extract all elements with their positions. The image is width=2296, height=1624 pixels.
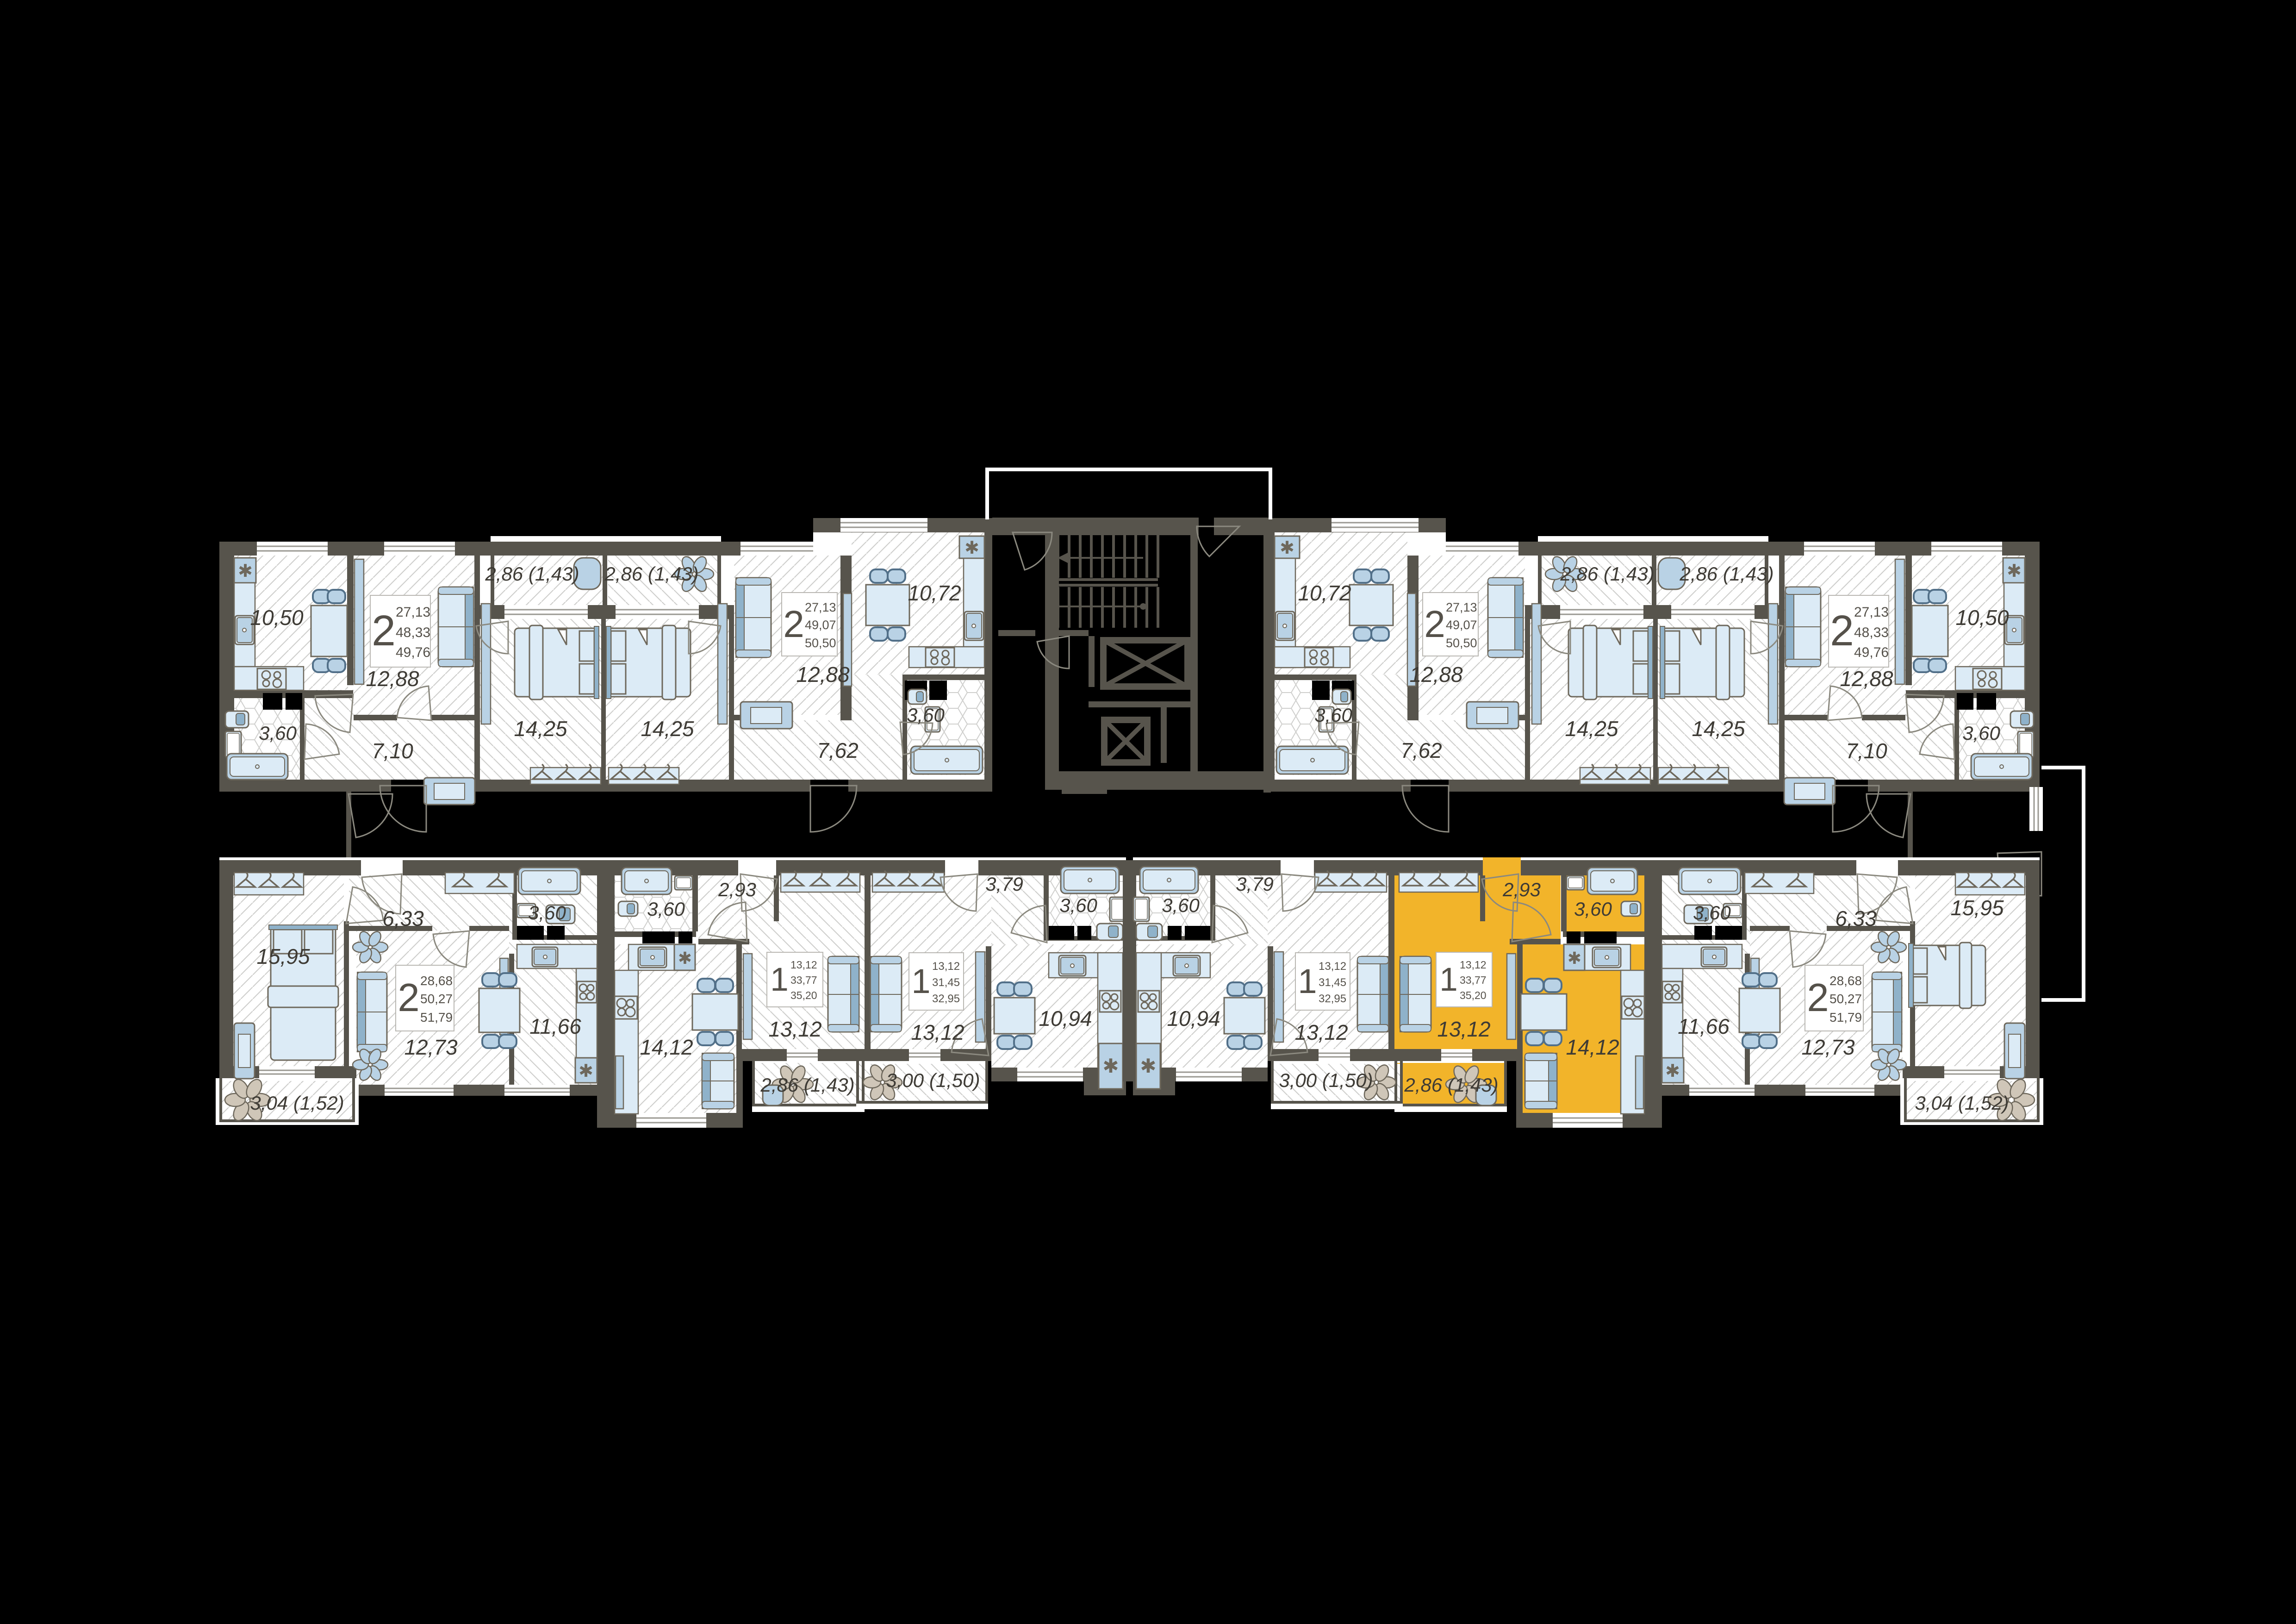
svg-text:12,73: 12,73 — [404, 1035, 458, 1059]
svg-text:2,86 (1,43): 2,86 (1,43) — [760, 1074, 854, 1096]
svg-text:2,86 (1,43): 2,86 (1,43) — [485, 563, 579, 585]
svg-text:✱: ✱ — [1665, 1062, 1680, 1081]
svg-text:11,66: 11,66 — [1678, 1014, 1730, 1038]
svg-text:12,73: 12,73 — [1801, 1035, 1855, 1059]
svg-text:3,00 (1,50): 3,00 (1,50) — [1279, 1069, 1373, 1091]
svg-text:50,50: 50,50 — [805, 636, 836, 650]
svg-text:3,60: 3,60 — [259, 722, 297, 744]
svg-text:2,86 (1,43): 2,86 (1,43) — [1404, 1074, 1498, 1096]
svg-text:3,60: 3,60 — [1314, 704, 1352, 726]
svg-text:✱: ✱ — [238, 562, 253, 581]
svg-text:14,25: 14,25 — [1565, 717, 1618, 741]
svg-text:3,60: 3,60 — [528, 902, 566, 924]
svg-text:49,07: 49,07 — [805, 618, 836, 632]
svg-text:13,12: 13,12 — [1294, 1020, 1348, 1044]
svg-text:48,33: 48,33 — [1854, 625, 1889, 640]
svg-text:✱: ✱ — [678, 949, 692, 968]
svg-text:13,12: 13,12 — [768, 1017, 821, 1041]
svg-text:✱: ✱ — [1280, 538, 1294, 558]
svg-text:7,62: 7,62 — [1400, 738, 1442, 762]
svg-text:3,60: 3,60 — [1162, 894, 1200, 916]
svg-text:15,95: 15,95 — [256, 944, 310, 968]
svg-text:12,88: 12,88 — [796, 662, 850, 687]
svg-text:14,25: 14,25 — [1692, 717, 1745, 741]
svg-text:10,72: 10,72 — [1298, 581, 1351, 605]
svg-text:50,50: 50,50 — [1446, 636, 1477, 650]
svg-text:1: 1 — [770, 962, 789, 998]
svg-text:2: 2 — [1807, 976, 1829, 1020]
svg-text:13,12: 13,12 — [1319, 960, 1346, 973]
svg-text:49,76: 49,76 — [396, 645, 430, 660]
svg-text:31,45: 31,45 — [1319, 976, 1346, 989]
svg-text:28,68: 28,68 — [420, 974, 453, 988]
svg-text:1: 1 — [1298, 962, 1317, 1000]
svg-text:6,33: 6,33 — [1835, 906, 1877, 931]
svg-text:2: 2 — [398, 976, 419, 1020]
svg-text:2: 2 — [372, 606, 396, 655]
svg-text:2: 2 — [1424, 603, 1445, 645]
svg-text:15,95: 15,95 — [1950, 896, 2004, 920]
svg-text:51,79: 51,79 — [1829, 1010, 1862, 1024]
svg-text:2: 2 — [783, 603, 804, 645]
svg-text:31,45: 31,45 — [932, 976, 960, 989]
svg-text:13,12: 13,12 — [790, 959, 817, 971]
svg-text:14,25: 14,25 — [641, 717, 694, 741]
svg-text:3,60: 3,60 — [1693, 902, 1731, 924]
svg-text:3,60: 3,60 — [1574, 898, 1612, 920]
svg-text:33,77: 33,77 — [790, 974, 817, 986]
svg-text:49,07: 49,07 — [1446, 618, 1477, 632]
svg-text:✱: ✱ — [964, 538, 979, 558]
svg-text:2,86 (1,43): 2,86 (1,43) — [604, 563, 698, 585]
svg-text:✱: ✱ — [1568, 949, 1581, 968]
svg-text:12,88: 12,88 — [366, 667, 419, 691]
svg-text:14,12: 14,12 — [1566, 1035, 1619, 1059]
svg-text:10,94: 10,94 — [1167, 1006, 1220, 1031]
svg-text:33,77: 33,77 — [1460, 974, 1487, 986]
svg-text:35,20: 35,20 — [790, 989, 817, 1001]
svg-text:1: 1 — [1439, 962, 1458, 998]
svg-text:2: 2 — [1830, 606, 1854, 655]
svg-text:11,66: 11,66 — [529, 1014, 581, 1038]
svg-text:3,00 (1,50): 3,00 (1,50) — [886, 1069, 980, 1091]
svg-text:10,50: 10,50 — [250, 606, 304, 630]
svg-text:7,10: 7,10 — [372, 739, 413, 763]
svg-text:13,12: 13,12 — [911, 1020, 964, 1044]
svg-text:✱: ✱ — [1140, 1055, 1156, 1077]
svg-text:✱: ✱ — [579, 1062, 593, 1081]
svg-text:7,62: 7,62 — [817, 738, 859, 762]
svg-text:3,04 (1,52): 3,04 (1,52) — [1915, 1092, 2009, 1114]
svg-text:32,95: 32,95 — [932, 993, 960, 1005]
svg-text:3,60: 3,60 — [1059, 894, 1097, 916]
svg-text:✱: ✱ — [2007, 562, 2022, 581]
svg-text:27,13: 27,13 — [396, 605, 430, 620]
svg-text:27,13: 27,13 — [1854, 605, 1889, 620]
svg-text:✱: ✱ — [1102, 1055, 1119, 1077]
svg-text:3,60: 3,60 — [907, 704, 945, 726]
svg-text:50,27: 50,27 — [420, 992, 453, 1006]
svg-text:13,12: 13,12 — [1460, 959, 1487, 971]
svg-text:13,12: 13,12 — [1437, 1017, 1490, 1041]
svg-text:28,68: 28,68 — [1829, 974, 1862, 988]
svg-text:3,04 (1,52): 3,04 (1,52) — [250, 1092, 344, 1114]
svg-text:50,27: 50,27 — [1829, 992, 1862, 1006]
svg-text:7,10: 7,10 — [1846, 739, 1887, 763]
svg-text:6,33: 6,33 — [382, 906, 424, 931]
svg-text:14,25: 14,25 — [514, 717, 567, 741]
svg-text:2,93: 2,93 — [718, 879, 756, 900]
svg-text:3,60: 3,60 — [1962, 722, 2000, 744]
svg-text:2,86 (1,43): 2,86 (1,43) — [1679, 563, 1773, 585]
svg-text:2,93: 2,93 — [1502, 879, 1541, 900]
svg-text:48,33: 48,33 — [396, 625, 430, 640]
svg-text:3,79: 3,79 — [1236, 873, 1274, 895]
svg-text:14,12: 14,12 — [640, 1035, 693, 1059]
svg-text:12,88: 12,88 — [1409, 662, 1463, 687]
svg-text:3,79: 3,79 — [985, 873, 1023, 895]
svg-text:10,94: 10,94 — [1039, 1006, 1092, 1031]
svg-text:10,50: 10,50 — [1955, 606, 2009, 630]
svg-text:10,72: 10,72 — [908, 581, 961, 605]
svg-text:12,88: 12,88 — [1840, 667, 1893, 691]
svg-text:1: 1 — [911, 962, 930, 1000]
svg-text:51,79: 51,79 — [420, 1010, 453, 1024]
svg-text:27,13: 27,13 — [1446, 600, 1477, 614]
svg-text:13,12: 13,12 — [932, 960, 960, 973]
svg-text:3,60: 3,60 — [647, 898, 685, 920]
svg-text:27,13: 27,13 — [805, 600, 836, 614]
svg-text:49,76: 49,76 — [1854, 645, 1889, 660]
svg-text:35,20: 35,20 — [1460, 989, 1487, 1001]
svg-text:2,86 (1,43): 2,86 (1,43) — [1560, 563, 1654, 585]
svg-text:32,95: 32,95 — [1319, 993, 1346, 1005]
